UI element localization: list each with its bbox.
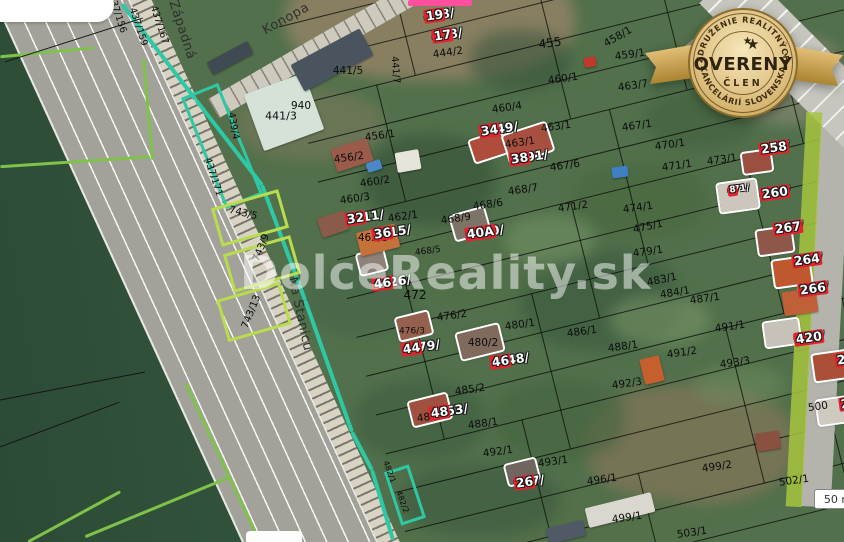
listing-house-number: 40A [464,224,497,242]
parcel-label: 503/1 [676,526,707,541]
parcel-label: 437/159 [127,7,148,47]
street-name: Konopa [260,1,311,37]
listing-house-number: 267 [772,219,804,237]
parcel-label: 743/5 [228,206,258,223]
parcel-label: 491/2 [666,346,697,361]
parcel-label: 486/1 [566,325,597,340]
parcel-label: 459/1 [614,48,645,63]
parcel-label: 463/1 [540,120,571,135]
parcel-label: 502/1 [778,474,809,489]
parcel-label: 467/6 [549,159,580,174]
listing-house-number: 34 [478,122,501,139]
parcel-label: 471/1 [661,159,692,174]
parcel-label: 460/4 [491,101,522,116]
listing-house-number: 8 [727,186,739,197]
parcel-label: 473/1 [706,153,737,168]
verified-badge: ZDRUŽENIE REALITNÝCH KANCELÁRIÍ SLOVENSK… [645,2,844,127]
parcel-label: 455 [538,35,562,50]
parcel-label: 499/2 [701,460,732,475]
parcel-label: 474/1 [622,201,653,216]
listing-house-number: 46 [489,353,512,370]
listing-house-number: 17 [431,27,454,44]
listing-house-number: 266 [797,280,829,298]
listing-house-number: 44 [400,340,423,357]
parcel-label: 487/1 [689,292,720,307]
parcel-label: 500 [807,400,828,413]
parcel-label: 485/2 [454,383,485,398]
watermark: DolceReality.sk [240,246,651,300]
parcel-label: 468/7 [507,183,538,198]
parcel-label: 493/3 [719,356,750,371]
badge-circle: ZDRUŽENIE REALITNÝCH KANCELÁRIÍ SLOVENSK… [688,8,798,118]
listing-house-number: 260 [759,184,791,202]
listing-house-number: 264 [791,251,823,269]
parcel-label: 492/3 [611,377,642,392]
parcel-label: 488/1 [467,417,498,432]
parcel-label: 484/1 [659,285,691,301]
parcel-label: 458/1 [602,25,633,49]
ui-remnant-top-left [0,0,114,22]
listing-house-number: 38 [508,150,531,167]
parcel-label: 496/1 [586,473,617,488]
parcel-label: 476/2 [436,309,467,324]
listing-house-number: 32 [344,210,367,227]
parcel-label: 441/5 [333,66,363,77]
parcel-label: 482/1 [381,460,396,484]
pink-marker [408,0,472,6]
listing-house-number: 270 [838,394,844,412]
listing-house-number: 26 [513,474,536,491]
parcel-label: 492/1 [482,445,513,460]
parcel-label: 460/1 [547,72,578,87]
parcel-label: 460/2 [359,175,390,190]
parcel-label: 463/7 [617,79,648,94]
parcel-label: 460/3 [339,192,370,207]
parcel-label: 456/1 [364,129,395,144]
parcel-label: 493/1 [537,455,568,470]
parcel-label: 488/1 [607,340,638,355]
parcel-label: 499/1 [611,511,642,526]
parcel-label: 444/2 [432,46,463,61]
parcel-label: 470/1 [654,138,685,153]
map-viewport[interactable]: 437/156437/159437/167437/171439/4441/774… [0,0,844,542]
parcel-label: 482/2 [394,490,409,514]
parcel-label: 468/9 [440,212,471,227]
parcel-label: 437/171 [202,157,223,197]
parcel-label: 480/1 [504,318,535,333]
listing-house-number: 48 [428,404,451,421]
parcel-label: 437/167 [148,5,169,45]
parcel-label: 471/2 [557,200,588,215]
parcel-label: 441/3 [265,111,297,122]
parcel-label: 441/7 [389,56,401,84]
listing-house-number: 19 [423,7,446,24]
ui-remnant-bottom [246,531,302,542]
parcel-label: 475/1 [632,219,664,236]
listing-house-number: 420 [793,329,825,347]
parcel-label: 480/2 [468,338,498,349]
parcel-label: 456/2 [333,151,364,166]
badge-title: OVERENÝ [690,54,796,75]
street-name: Západná [166,0,197,61]
listing-house-number: 36 [371,225,394,242]
listing-house-number: 258 [758,139,790,157]
parcel-label: 468/6 [472,198,503,213]
parcel-label: 476/3 [399,328,425,337]
scale-indicator: 50 m [814,489,844,509]
listing-house-number: 268 [834,350,844,368]
badge-subtitle: ČLEN [690,78,796,89]
parcel-label: 439/4 [226,112,240,141]
parcel-label: 491/1 [714,320,745,335]
